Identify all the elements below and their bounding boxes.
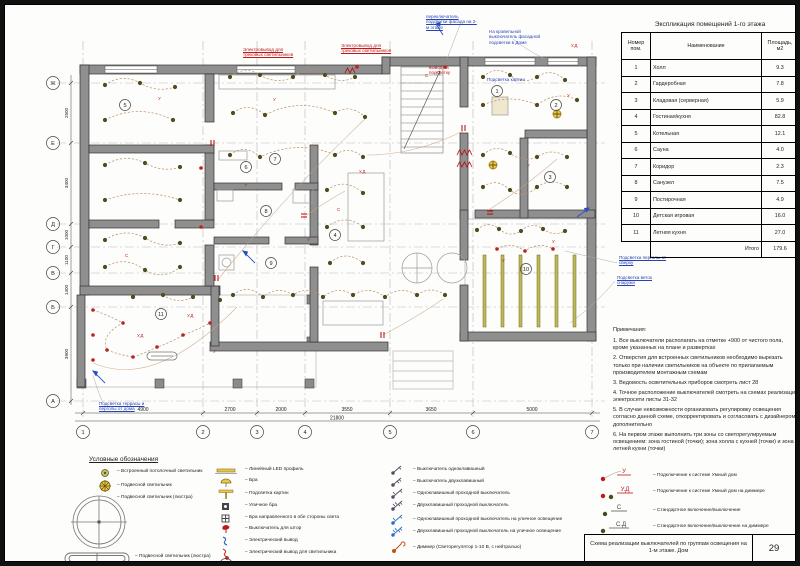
smart-home-symbol: У	[601, 469, 631, 481]
svg-text:3400: 3400	[64, 177, 69, 188]
room-schedule-title: Экспликация помещений 1-го этажа	[621, 21, 796, 28]
svg-text:Ж: Ж	[50, 81, 56, 87]
col-number: Номер пом.	[622, 33, 651, 60]
svg-text:11: 11	[158, 312, 164, 318]
legend-icons-col1	[63, 465, 213, 562]
room-schedule: Экспликация помещений 1-го этажа Номер п…	[621, 21, 796, 258]
floor-plan: 1 2 3 4 5 6 7 8 9 10 11 4900 2700 2000 3…	[5, 5, 617, 451]
svg-text:3650: 3650	[425, 407, 436, 413]
annotation-branch-light: Подсветка веток снаружи	[617, 275, 663, 286]
electric-outlet-icon	[223, 537, 227, 545]
legend-label: – Номер помещения по экспликации	[245, 561, 327, 562]
dimmer-icon	[393, 542, 406, 553]
legend-label: – Двухклавишный проходной выключатель	[413, 503, 509, 508]
svg-text:6: 6	[244, 165, 247, 171]
switch-type-label: С	[337, 207, 340, 212]
svg-text:7: 7	[273, 157, 276, 163]
notes-title: Примечания:	[613, 327, 796, 334]
legend-icons-col3	[387, 463, 413, 562]
legend-label: – Бра направленного в обе стороны света	[245, 515, 339, 520]
table-row: 1Холл9.3	[622, 60, 797, 77]
svg-text:2: 2	[201, 430, 204, 436]
svg-text:А: А	[51, 399, 55, 405]
legend-icons-col4: У У.Д С С.Д	[597, 463, 653, 538]
svg-text:Е: Е	[51, 141, 55, 147]
walls	[77, 57, 596, 387]
svg-text:У.Д: У.Д	[621, 487, 630, 493]
dimension-left: 2500 3400 1000 1100 1400 3900 Ж Е Д Г В …	[47, 75, 74, 408]
svg-text:3900: 3900	[64, 348, 69, 359]
svg-text:В: В	[51, 271, 55, 277]
legend-label: – Стандартное включение/выключение на ди…	[653, 524, 793, 529]
switch-marks	[211, 125, 493, 338]
switch-type-label: У.Д	[359, 169, 365, 174]
standard-switch-symbol: С	[603, 505, 627, 516]
svg-text:4: 4	[333, 233, 336, 239]
staircase	[401, 67, 443, 153]
axis-grid	[57, 41, 605, 417]
svg-text:С.Д: С.Д	[616, 522, 626, 528]
svg-text:Б: Б	[51, 305, 55, 311]
svg-text:3550: 3550	[341, 407, 352, 413]
note-item: 4. Точное расположение выключателей смот…	[613, 390, 796, 404]
sheet-number: 29	[752, 535, 795, 561]
legend-label: – Одноклавишный проходной выключатель на…	[413, 517, 562, 522]
curtain-switch-icon	[223, 526, 229, 534]
note-item: 3. Ведомость осветительных приборов смот…	[613, 380, 796, 387]
switch-type-label: У	[552, 239, 555, 244]
switch-type-label: У	[273, 97, 276, 102]
legend-label: – Встроенный потолочный светильник	[117, 469, 202, 474]
legend-label: – Подсветка картин	[245, 491, 289, 496]
note-item: 1. Все выключатели располагать на отметк…	[613, 338, 796, 352]
outdoor-sconce-icon	[222, 503, 229, 510]
legend-label: – Выключатель двухклавишный	[413, 479, 484, 484]
switch-type-label: У.Д	[187, 313, 193, 318]
legend-label: – Диммер (Светорегулятор 1-10 В, с нейтр…	[413, 545, 521, 550]
drawing-title: Схема реализации выключателей по группам…	[585, 535, 752, 561]
switch-1key-pass-outdoor-icon	[392, 515, 402, 524]
legend-label: – Выключатель одноклавишный	[413, 467, 485, 472]
annotation-terrace-light: Подсветка террасы и перголы от дома	[99, 401, 151, 412]
switch-type-label: С	[125, 253, 128, 258]
drawing-sheet: 1 2 3 4 5 6 7 8 9 10 11 4900 2700 2000 3…	[4, 4, 796, 562]
svg-text:5000: 5000	[526, 407, 537, 413]
svg-text:1400: 1400	[64, 284, 69, 295]
switch-type-label: У	[213, 349, 216, 354]
svg-text:2700: 2700	[224, 407, 235, 413]
total-value: 179.6	[762, 241, 797, 258]
switch-2key-icon	[392, 478, 401, 486]
switch-type-label: У.Д	[571, 43, 577, 48]
table-row: 9Постирочная4.9	[622, 192, 797, 209]
svg-text:3: 3	[255, 430, 258, 436]
sconce-icon	[221, 479, 231, 487]
legend-label: – Двухклавишный проходной выключатель на…	[413, 529, 561, 534]
svg-text:Д: Д	[51, 222, 55, 228]
svg-text:1: 1	[495, 89, 498, 95]
chandelier-oval-icon	[65, 553, 129, 562]
svg-text:8: 8	[264, 209, 267, 215]
table-total-row: Итого179.6	[622, 241, 797, 258]
switch-type-label: У	[567, 93, 570, 98]
svg-text:2: 2	[554, 103, 557, 109]
switch-type-label: У	[527, 163, 530, 168]
svg-text:4: 4	[303, 430, 306, 436]
annotation-track-outlet-1: Электровывод для трековых светильников	[243, 47, 301, 58]
annotation-track-outlet-2: Электровывод для трековых светильников	[341, 43, 399, 54]
table-row: 7Коридор2.3	[622, 159, 797, 176]
legend-label: – Уличное бра	[245, 503, 277, 508]
led-profile-icon	[215, 469, 237, 474]
table-row: 11Летняя кухня27.0	[622, 225, 797, 242]
room-bubbles: 1 2 3 4 5 6 7 8 9 10 11	[120, 86, 562, 320]
svg-text:С: С	[617, 505, 622, 511]
svg-text:6: 6	[471, 430, 474, 436]
switch-2key-pass-outdoor-icon	[392, 527, 402, 536]
recessed-light-icon	[102, 470, 109, 477]
legend-label: – Подвесной светильник (люстра)	[135, 554, 211, 559]
total-label: Итого	[651, 241, 762, 258]
annotation-facade-switch: переключатель подсветки фасада на 2-м эт…	[426, 14, 478, 30]
svg-text:10: 10	[523, 267, 529, 273]
legend-label: – Подвесной светильник (люстра)	[117, 495, 193, 500]
switch-type-label: У	[158, 96, 161, 101]
table-row: 8Санузел7.5	[622, 175, 797, 192]
notes-block: Примечания: 1. Все выключатели располага…	[613, 327, 796, 456]
room-number-legend-bubble: 10	[218, 557, 234, 562]
legend-label: – Бра	[245, 478, 257, 483]
table-row: 10Детская игровая16.0	[622, 208, 797, 225]
legend-label: – Электрический вывод	[245, 538, 298, 543]
legend-heading: Условные обозначения	[89, 456, 158, 463]
legend-label: – Подвесной светильник	[117, 483, 172, 488]
svg-text:2000: 2000	[275, 407, 286, 413]
svg-text:1100: 1100	[64, 255, 69, 265]
table-row: 6Сауна4.0	[622, 142, 797, 159]
picture-light-icon	[219, 490, 233, 499]
svg-text:1000: 1000	[64, 229, 69, 240]
table-header: Номер пом. Наименование Площадь, м2	[622, 33, 797, 60]
annotation-backlight-outlet: вывод на подсветку	[429, 65, 469, 76]
legend-label: – Подключение к системе Умный дом на дим…	[653, 489, 793, 494]
col-name: Наименование	[651, 33, 762, 60]
svg-text:У: У	[622, 469, 626, 475]
legend-label: – Одноклавишный проходной выключатель	[413, 491, 510, 496]
two-way-sconce-icon	[222, 515, 229, 522]
svg-text:7: 7	[590, 430, 593, 436]
svg-text:3: 3	[548, 175, 551, 181]
legend-label: – Линейный LED профиль	[245, 467, 303, 472]
note-item: 2. Отверстия для встроенных светильников…	[613, 355, 796, 376]
legend-label: – Выключатель для штор	[245, 526, 301, 531]
table-row: 4Гостиная/кухня82.8	[622, 109, 797, 126]
table-row: 2Гардеробная7.8	[622, 76, 797, 93]
legend-label: – Подключение к системе Умный дом	[653, 473, 737, 478]
table-row: 5Котельная12.1	[622, 126, 797, 143]
svg-text:5: 5	[123, 103, 126, 109]
switch-type-markers: УСУ.ДГУУУУ.ДУУ.ДУСУУ.ДСУ	[125, 43, 577, 354]
chandelier-icon	[71, 496, 127, 548]
led-profiles	[483, 255, 576, 327]
standard-dimmer-symbol: С.Д	[601, 522, 629, 533]
svg-text:2500: 2500	[64, 107, 69, 118]
switch-2key-pass-icon	[392, 501, 402, 510]
svg-text:5: 5	[388, 430, 391, 436]
note-item: 5. В случае невозможности организовать р…	[613, 407, 796, 428]
title-block: Схема реализации выключателей по группам…	[584, 534, 795, 561]
svg-text:21800: 21800	[330, 416, 344, 422]
col-area: Площадь, м2	[762, 33, 797, 60]
switch-1key-icon	[392, 466, 401, 474]
svg-text:9: 9	[269, 261, 272, 267]
dimension-bottom: 4900 2700 2000 3550 3650 5000 21800 1 2 …	[75, 407, 600, 439]
legend-icons-col2	[213, 465, 243, 562]
pendant-light-icon	[99, 480, 111, 492]
svg-text:Г: Г	[51, 245, 54, 251]
terrace-posts	[77, 295, 316, 388]
switch-type-label: С	[425, 73, 428, 78]
annotation-picture-light: Подсветка картин	[487, 77, 529, 82]
table-row: 3Кладовая (серверная)5.9	[622, 93, 797, 110]
switch-type-label: У.Д	[137, 333, 143, 338]
switch-type-label: У	[307, 237, 310, 242]
legend-label: – Стандартное включение/выключение	[653, 508, 741, 513]
note-item: 6. На первом этаже выполнить три зоны со…	[613, 432, 796, 453]
annotation-roof-switch: На кровельной выключатель фасадной подсв…	[489, 29, 545, 45]
switch-type-label: У	[502, 258, 505, 263]
legend-label: – Электрический вывод для светильника	[245, 550, 336, 555]
switch-1key-pass-icon	[392, 489, 402, 498]
svg-text:1: 1	[81, 430, 84, 436]
smart-home-dimmer-symbol: У.Д	[601, 487, 633, 499]
